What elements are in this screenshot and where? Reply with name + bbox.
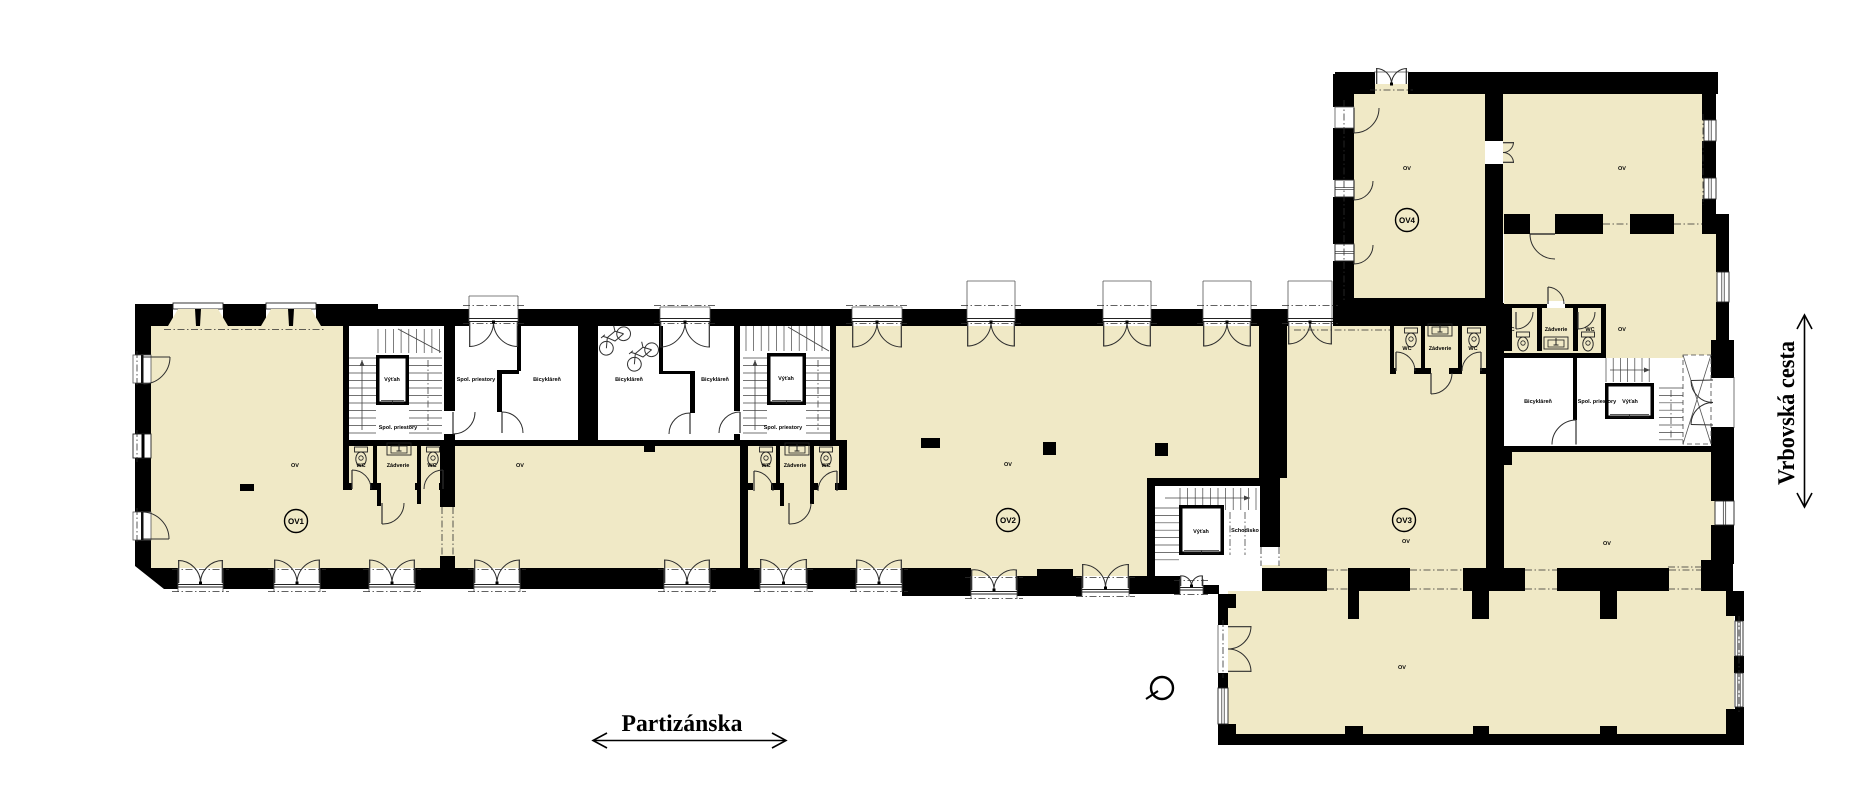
- svg-text:Spol. priestory: Spol. priestory: [1578, 399, 1617, 405]
- svg-text:Schodisko: Schodisko: [1231, 528, 1259, 534]
- svg-text:WC: WC: [761, 463, 770, 469]
- svg-text:WC: WC: [427, 463, 436, 469]
- svg-text:OV1: OV1: [288, 517, 305, 526]
- svg-text:Bicykláreň: Bicykláreň: [615, 376, 643, 383]
- svg-text:OV2: OV2: [1000, 516, 1017, 525]
- svg-text:Výťah: Výťah: [384, 376, 400, 383]
- svg-text:Výťah: Výťah: [1193, 528, 1209, 535]
- svg-text:OV: OV: [1004, 462, 1012, 468]
- svg-text:WC: WC: [1505, 327, 1514, 333]
- svg-text:OV: OV: [1403, 166, 1411, 172]
- svg-text:OV3: OV3: [1396, 516, 1413, 525]
- svg-text:Zádverie: Zádverie: [1545, 326, 1568, 333]
- svg-text:WC: WC: [1468, 346, 1477, 352]
- svg-text:Zádverie: Zádverie: [1429, 345, 1452, 352]
- svg-text:OV: OV: [1618, 166, 1626, 172]
- svg-text:WC: WC: [1585, 327, 1594, 333]
- svg-text:Spol. priestory: Spol. priestory: [764, 425, 803, 431]
- svg-text:Spol. priestory: Spol. priestory: [379, 425, 418, 431]
- svg-text:OV: OV: [1398, 665, 1406, 671]
- svg-text:Zádverie: Zádverie: [387, 462, 410, 469]
- svg-text:Bicykláreň: Bicykláreň: [533, 376, 561, 383]
- svg-text:OV4: OV4: [1399, 216, 1416, 225]
- svg-text:OV: OV: [1618, 327, 1626, 333]
- svg-text:Vrbovská cesta: Vrbovská cesta: [1774, 341, 1800, 485]
- svg-text:Partizánska: Partizánska: [622, 711, 743, 737]
- svg-text:Zádverie: Zádverie: [784, 462, 807, 469]
- svg-text:WC: WC: [356, 463, 365, 469]
- svg-text:OV: OV: [1603, 541, 1611, 547]
- svg-text:Výťah: Výťah: [778, 375, 794, 382]
- svg-text:Bicykláreň: Bicykláreň: [1524, 398, 1552, 405]
- svg-text:OV: OV: [1402, 539, 1410, 545]
- svg-text:WC: WC: [821, 463, 830, 469]
- svg-text:OV: OV: [291, 463, 299, 469]
- svg-text:Spol. priestory: Spol. priestory: [457, 377, 496, 383]
- svg-text:Výťah: Výťah: [1622, 398, 1638, 405]
- svg-text:OV: OV: [516, 463, 524, 469]
- svg-text:WC: WC: [1402, 346, 1411, 352]
- svg-text:Bicykláreň: Bicykláreň: [701, 376, 729, 383]
